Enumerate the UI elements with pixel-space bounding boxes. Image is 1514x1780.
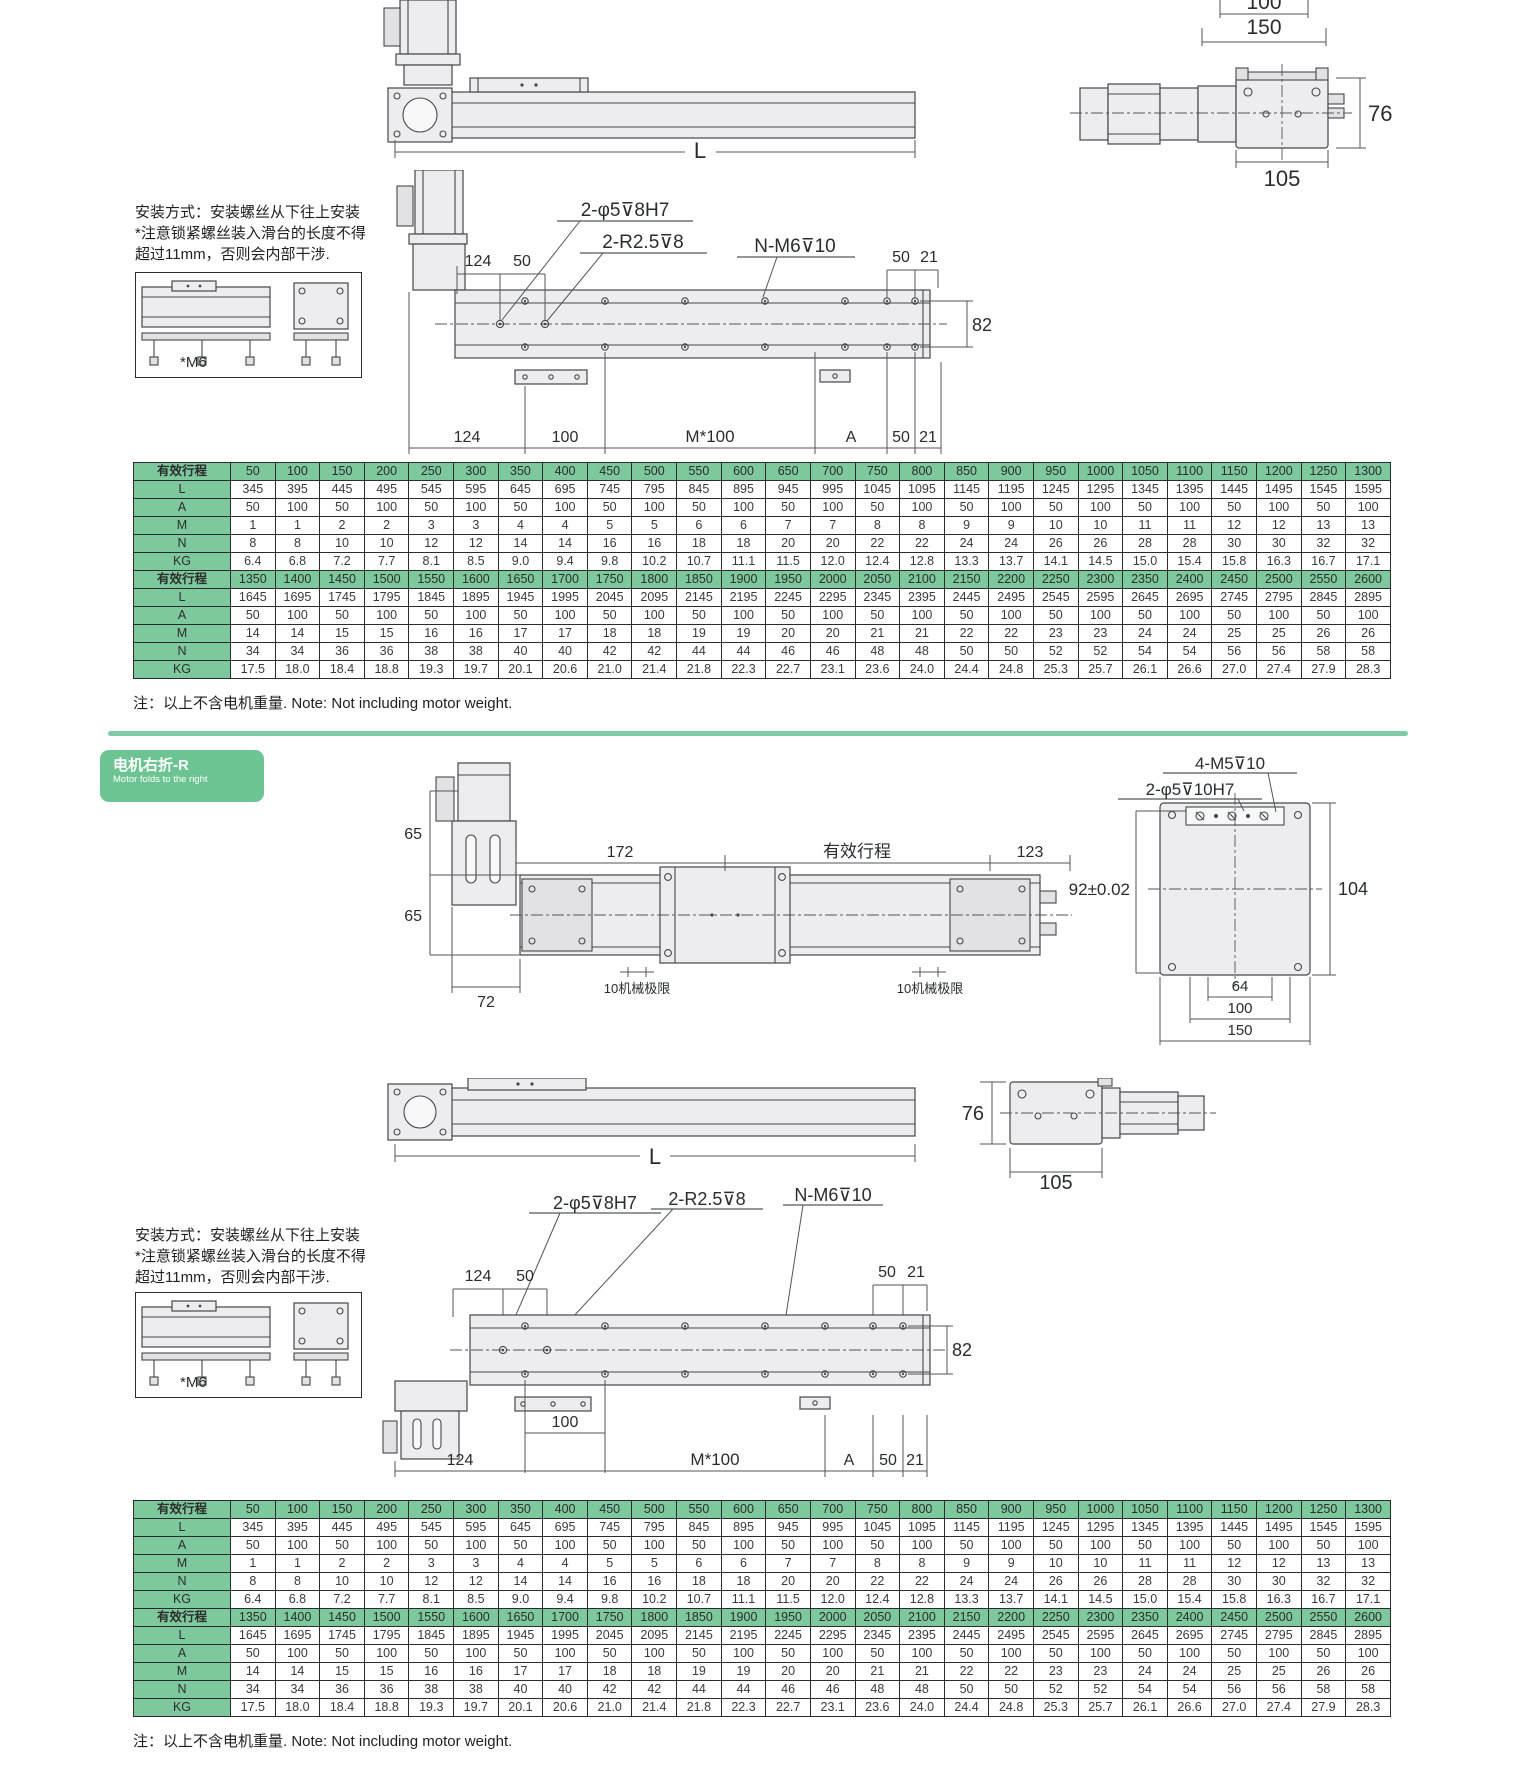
spec-cell: 13: [1346, 1555, 1391, 1573]
mech-limit-right: 10机械极限: [897, 981, 963, 996]
rail-body: [388, 88, 915, 142]
callout-radius: 2-R2.5⊽8: [602, 232, 684, 253]
stroke-header-label: 有效行程: [134, 1501, 231, 1519]
rail-bottom-face: [435, 290, 947, 358]
section-label: 电机右折-R Motor folds to the right: [100, 750, 264, 802]
spec-cell: 1445: [1212, 1519, 1257, 1537]
stroke-value: 2150: [944, 571, 989, 589]
spec-cell: 1245: [1033, 1519, 1078, 1537]
spec-cell: 745: [587, 1519, 632, 1537]
spec-cell: 46: [766, 1681, 811, 1699]
spec-cell: 7: [810, 517, 855, 535]
spec-cell: 32: [1301, 535, 1346, 553]
callout-thread: N-M6⊽10: [794, 1185, 871, 1205]
spec-cell: 13.7: [989, 1591, 1034, 1609]
stroke-value: 500: [632, 463, 677, 481]
mech-limit-left: 10机械极限: [604, 981, 670, 996]
spec-cell: 100: [632, 499, 677, 517]
spec-cell: 52: [1078, 1681, 1123, 1699]
dim-bA: A: [844, 1452, 855, 1469]
spec-cell: 2145: [677, 589, 722, 607]
spec-cell: 2745: [1212, 1627, 1257, 1645]
stroke-value: 800: [900, 463, 945, 481]
spec-cell: 10: [1033, 517, 1078, 535]
stroke-value: 1050: [1123, 1501, 1168, 1519]
spec-cell: 4: [498, 1555, 543, 1573]
spec-cell: 12: [1257, 1555, 1302, 1573]
vertical-motor: [384, 0, 460, 85]
spec-cell: 27.9: [1301, 661, 1346, 679]
section-divider: [108, 731, 1408, 736]
spec-row-N: N881010121214141616181820202222242426262…: [134, 1573, 1391, 1591]
install-instructions: 安装方式：安装螺丝从下往上安装 *注意锁紧螺丝装入滑台的长度不得 超过11mm，…: [135, 202, 395, 265]
dim-effective-stroke: 有效行程: [823, 842, 891, 861]
spec-cell: 48: [855, 1681, 900, 1699]
spec-cell: 945: [766, 481, 811, 499]
stroke-header-row: 有效行程135014001450150015501600165017001750…: [134, 1609, 1391, 1627]
spec-cell: 100: [1257, 499, 1302, 517]
spec-cell: 50: [1123, 1537, 1168, 1555]
spec-cell: 445: [320, 481, 365, 499]
spec-cell: 38: [409, 643, 454, 661]
drawing-top-side-view: L: [370, 0, 1030, 160]
spec-cell: 24.0: [900, 661, 945, 679]
spec-cell: 21: [900, 625, 945, 643]
spec-cell: 945: [766, 1519, 811, 1537]
stroke-value: 1400: [275, 1609, 320, 1627]
spec-cell: 2695: [1167, 589, 1212, 607]
stroke-header-label: 有效行程: [134, 571, 231, 589]
stroke-value: 200: [364, 1501, 409, 1519]
stroke-value: 1450: [320, 571, 365, 589]
spec-cell: 545: [409, 1519, 454, 1537]
spec-cell: 50: [944, 643, 989, 661]
stroke-value: 550: [677, 463, 722, 481]
spec-cell: 2395: [900, 589, 945, 607]
spec-cell: 11.5: [766, 553, 811, 571]
spec-cell: 100: [1078, 607, 1123, 625]
spec-cell: 100: [1346, 499, 1391, 517]
stroke-value: 100: [275, 463, 320, 481]
spec-cell: 100: [1078, 499, 1123, 517]
stroke-value: 2400: [1167, 1609, 1212, 1627]
spec-cell: 14: [231, 625, 276, 643]
dim-b50: 50: [879, 1452, 897, 1469]
stroke-value: 250: [409, 1501, 454, 1519]
spec-cell: 17: [543, 625, 588, 643]
spec-cell: 1945: [498, 1627, 543, 1645]
row-label: A: [134, 1645, 231, 1663]
dim-b50: 50: [892, 429, 910, 446]
spec-cell: 50: [409, 499, 454, 517]
spec-cell: 2095: [632, 1627, 677, 1645]
spec-cell: 100: [1257, 607, 1302, 625]
spec-cell: 24: [944, 1573, 989, 1591]
spec-cell: 1895: [454, 589, 499, 607]
spec-cell: 100: [721, 499, 766, 517]
spec-cell: 22.3: [721, 661, 766, 679]
spec-cell: 26: [1033, 1573, 1078, 1591]
spec-cell: 100: [1346, 1645, 1391, 1663]
stroke-value: 1250: [1301, 463, 1346, 481]
spec-row-M: M1122334455667788991010111112121313: [134, 1555, 1391, 1573]
spec-cell: 2795: [1257, 589, 1302, 607]
spec-cell: 18: [721, 535, 766, 553]
spec-table-2: 有效行程501001502002503003504004505005506006…: [133, 1500, 1391, 1717]
spec-cell: 27.4: [1257, 1699, 1302, 1717]
stroke-header-row: 有效行程135014001450150015501600165017001750…: [134, 571, 1391, 589]
spec-cell: 2545: [1033, 1627, 1078, 1645]
stroke-value: 2100: [900, 571, 945, 589]
spec-cell: 100: [364, 499, 409, 517]
install-diagram-box-2: *M6: [135, 1292, 362, 1398]
spec-cell: 1: [275, 517, 320, 535]
spec-cell: 10.2: [632, 553, 677, 571]
dim-flange-100: 100: [1227, 1000, 1252, 1017]
spec-cell: 1645: [231, 1627, 276, 1645]
spec-cell: 50: [1123, 607, 1168, 625]
stroke-value: 1250: [1301, 1501, 1346, 1519]
spec-cell: 2245: [766, 1627, 811, 1645]
spec-cell: 20.1: [498, 1699, 543, 1717]
dim-100: 100: [1246, 0, 1281, 14]
spec-cell: 21.8: [677, 1699, 722, 1717]
spec-table-2-wrap: 有效行程501001502002503003504004505005506006…: [133, 1500, 1391, 1717]
row-label: N: [134, 1681, 231, 1699]
spec-cell: 19: [677, 1663, 722, 1681]
dim-b21: 21: [919, 429, 937, 446]
spec-cell: 50: [320, 499, 365, 517]
spec-cell: 6: [677, 1555, 722, 1573]
spec-cell: 48: [855, 643, 900, 661]
spec-cell: 21: [900, 1663, 945, 1681]
spec-cell: 18: [587, 1663, 632, 1681]
spec-cell: 100: [989, 499, 1034, 517]
spec-cell: 32: [1346, 535, 1391, 553]
spec-cell: 50: [409, 1645, 454, 1663]
spec-cell: 12: [1257, 517, 1302, 535]
spec-cell: 21.4: [632, 661, 677, 679]
spec-cell: 5: [632, 517, 677, 535]
spec-cell: 20: [766, 1663, 811, 1681]
spec-cell: 1: [231, 1555, 276, 1573]
stroke-value: 1100: [1167, 463, 1212, 481]
spec-cell: 12: [1212, 1555, 1257, 1573]
spec-cell: 14: [275, 625, 320, 643]
stroke-value: 2150: [944, 1609, 989, 1627]
spec-cell: 50: [1301, 1645, 1346, 1663]
stroke-value: 450: [587, 463, 632, 481]
stroke-value: 1150: [1212, 463, 1257, 481]
spec-cell: 52: [1078, 643, 1123, 661]
footnote-1: 注：以上不含电机重量. Note: Not including motor we…: [133, 692, 512, 713]
spec-cell: 16: [587, 535, 632, 553]
spec-cell: 8.5: [454, 553, 499, 571]
spec-cell: 44: [721, 643, 766, 661]
spec-cell: 845: [677, 1519, 722, 1537]
spec-cell: 25.3: [1033, 1699, 1078, 1717]
rail-body: [388, 1078, 915, 1140]
stroke-value: 1350: [231, 1609, 276, 1627]
spec-cell: 2145: [677, 1627, 722, 1645]
install-diagram: *M6: [136, 273, 357, 373]
stroke-value: 500: [632, 1501, 677, 1519]
spec-cell: 50: [320, 1537, 365, 1555]
spec-cell: 1795: [364, 1627, 409, 1645]
spec-cell: 28: [1123, 1573, 1168, 1591]
folded-motor: [436, 763, 516, 905]
spec-cell: 24.0: [900, 1699, 945, 1717]
datasheet-page: L 100 150: [0, 0, 1514, 1780]
spec-cell: 21.8: [677, 661, 722, 679]
spec-cell: 50: [320, 1645, 365, 1663]
spec-cell: 7.2: [320, 553, 365, 571]
spec-row-KG: KG17.518.018.418.819.319.720.120.621.021…: [134, 661, 1391, 679]
dim-105-2: 105: [1039, 1172, 1072, 1190]
spec-cell: 12.4: [855, 553, 900, 571]
motor-side-profile: [1080, 84, 1236, 144]
spec-cell: 16: [409, 1663, 454, 1681]
spec-cell: 19: [721, 1663, 766, 1681]
stroke-value: 2050: [855, 571, 900, 589]
spec-cell: 22: [900, 1573, 945, 1591]
dim-76: 76: [1368, 101, 1392, 126]
row-label: A: [134, 607, 231, 625]
spec-cell: 595: [454, 1519, 499, 1537]
spec-cell: 50: [855, 1537, 900, 1555]
spec-cell: 8: [231, 535, 276, 553]
spec-cell: 100: [900, 1645, 945, 1663]
spec-row-KG: KG6.46.87.27.78.18.59.09.49.810.210.711.…: [134, 1591, 1391, 1609]
spec-cell: 10.2: [632, 1591, 677, 1609]
row-label: M: [134, 1555, 231, 1573]
spec-cell: 26: [1346, 625, 1391, 643]
spec-cell: 100: [454, 1645, 499, 1663]
spec-cell: 50: [587, 499, 632, 517]
row-label: KG: [134, 1699, 231, 1717]
stroke-value: 100: [275, 1501, 320, 1519]
spec-cell: 2395: [900, 1627, 945, 1645]
spec-cell: 4: [543, 517, 588, 535]
spec-cell: 14.5: [1078, 553, 1123, 571]
spec-cell: 2645: [1123, 589, 1168, 607]
spec-cell: 1095: [900, 1519, 945, 1537]
slider-plate: [470, 78, 588, 92]
spec-cell: 13: [1301, 1555, 1346, 1573]
spec-cell: 17.1: [1346, 553, 1391, 571]
spec-row-L: L345395445495545595645695745795845895945…: [134, 1519, 1391, 1537]
stroke-value: 1650: [498, 1609, 543, 1627]
spec-cell: 1545: [1301, 1519, 1346, 1537]
spec-cell: 27.9: [1301, 1699, 1346, 1717]
spec-cell: 100: [275, 607, 320, 625]
install-line-1: 安装方式：安装螺丝从下往上安装: [135, 202, 395, 223]
spec-cell: 4: [498, 517, 543, 535]
spec-cell: 15.4: [1167, 1591, 1212, 1609]
spec-cell: 100: [454, 607, 499, 625]
spec-cell: 34: [275, 643, 320, 661]
spec-cell: 11: [1123, 1555, 1168, 1573]
stroke-value: 250: [409, 463, 454, 481]
stroke-value: 1550: [409, 1609, 454, 1627]
spec-cell: 2045: [587, 1627, 632, 1645]
spec-cell: 50: [944, 1645, 989, 1663]
spec-cell: 50: [587, 1645, 632, 1663]
spec-row-N: N881010121214141616181820202222242426262…: [134, 535, 1391, 553]
spec-cell: 15.0: [1123, 1591, 1168, 1609]
stroke-value: 1350: [231, 571, 276, 589]
spec-cell: 20: [810, 1663, 855, 1681]
spec-cell: 26: [1033, 535, 1078, 553]
spec-cell: 1: [231, 517, 276, 535]
row-label: L: [134, 481, 231, 499]
spec-cell: 395: [275, 1519, 320, 1537]
dim-105: 105: [1264, 166, 1301, 191]
drawing-right-fold-top-view: 172 有效行程 123 65 65 72 10机械极限 10机械极限: [330, 755, 1420, 1075]
stroke-value: 2500: [1257, 1609, 1302, 1627]
row-label: L: [134, 589, 231, 607]
spec-cell: 38: [409, 1681, 454, 1699]
spec-cell: 2795: [1257, 1627, 1302, 1645]
stroke-value: 2100: [900, 1609, 945, 1627]
spec-cell: 20: [810, 535, 855, 553]
row-label: M: [134, 1663, 231, 1681]
dim-length-L: L: [694, 138, 706, 160]
spec-cell: 16: [409, 625, 454, 643]
spec-cell: 2545: [1033, 589, 1078, 607]
spec-cell: 50: [1212, 1645, 1257, 1663]
dim-21-right: 21: [907, 1264, 925, 1281]
dim-124: 124: [465, 1268, 492, 1285]
spec-cell: 100: [1167, 1537, 1212, 1555]
spec-cell: 1595: [1346, 1519, 1391, 1537]
spec-cell: 1345: [1123, 481, 1168, 499]
spec-cell: 100: [1078, 1645, 1123, 1663]
spec-cell: 24: [989, 1573, 1034, 1591]
spec-cell: 20: [766, 1573, 811, 1591]
spec-cell: 7.7: [364, 553, 409, 571]
spec-cell: 18.0: [275, 661, 320, 679]
spec-cell: 21: [855, 625, 900, 643]
spec-cell: 8: [900, 1555, 945, 1573]
spec-cell: 19.3: [409, 1699, 454, 1717]
stroke-value: 2350: [1123, 571, 1168, 589]
stroke-value: 2600: [1346, 571, 1391, 589]
spec-cell: 22: [989, 1663, 1034, 1681]
spec-cell: 18: [587, 625, 632, 643]
dim-50: 50: [516, 1268, 534, 1285]
dim-65b: 65: [404, 908, 422, 925]
spec-cell: 42: [587, 1681, 632, 1699]
stroke-value: 1550: [409, 571, 454, 589]
spec-cell: 1695: [275, 589, 320, 607]
spec-cell: 1845: [409, 1627, 454, 1645]
dim-flange-150: 150: [1227, 1022, 1252, 1039]
spec-cell: 12: [1212, 517, 1257, 535]
spec-cell: 1545: [1301, 481, 1346, 499]
spec-cell: 50: [498, 1645, 543, 1663]
spec-row-KG: KG17.518.018.418.819.319.720.120.621.021…: [134, 1699, 1391, 1717]
spec-cell: 100: [1257, 1537, 1302, 1555]
stroke-value: 2350: [1123, 1609, 1168, 1627]
spec-cell: 20.1: [498, 661, 543, 679]
spec-cell: 1345: [1123, 1519, 1168, 1537]
row-label: KG: [134, 553, 231, 571]
spec-cell: 9: [989, 1555, 1034, 1573]
spec-cell: 17: [498, 625, 543, 643]
spec-cell: 17.5: [231, 1699, 276, 1717]
stroke-value: 2250: [1033, 1609, 1078, 1627]
stroke-value: 1800: [632, 571, 677, 589]
spec-cell: 17: [498, 1663, 543, 1681]
spec-cell: 38: [454, 1681, 499, 1699]
spec-cell: 1995: [543, 589, 588, 607]
spec-cell: 2645: [1123, 1627, 1168, 1645]
spec-cell: 2345: [855, 1627, 900, 1645]
spec-cell: 24.8: [989, 661, 1034, 679]
stroke-value: 350: [498, 1501, 543, 1519]
spec-cell: 100: [543, 1537, 588, 1555]
stroke-value: 1850: [677, 571, 722, 589]
dim-50-right: 50: [892, 249, 910, 266]
spec-cell: 54: [1123, 1681, 1168, 1699]
spec-cell: 1495: [1257, 481, 1302, 499]
spec-cell: 25: [1257, 1663, 1302, 1681]
spec-cell: 10: [1078, 517, 1123, 535]
spec-cell: 5: [632, 1555, 677, 1573]
spec-cell: 13.3: [944, 1591, 989, 1609]
spec-cell: 18: [632, 625, 677, 643]
spec-cell: 1895: [454, 1627, 499, 1645]
spec-cell: 8.1: [409, 1591, 454, 1609]
dim-50: 50: [513, 253, 531, 270]
spec-cell: 24.4: [944, 1699, 989, 1717]
row-label: L: [134, 1627, 231, 1645]
spec-cell: 6: [677, 517, 722, 535]
spec-cell: 15: [364, 625, 409, 643]
spec-cell: 16.7: [1301, 553, 1346, 571]
spec-cell: 13.3: [944, 553, 989, 571]
spec-cell: 32: [1346, 1573, 1391, 1591]
spec-cell: 19.7: [454, 661, 499, 679]
spec-cell: 50: [1123, 499, 1168, 517]
spec-cell: 20.6: [543, 1699, 588, 1717]
spec-cell: 1395: [1167, 1519, 1212, 1537]
dim-length-L2: L: [649, 1144, 661, 1169]
spec-cell: 11: [1167, 1555, 1212, 1573]
rail-bottom-face: [450, 1315, 945, 1385]
stroke-value: 850: [944, 463, 989, 481]
spec-cell: 14.1: [1033, 553, 1078, 571]
spec-cell: 36: [364, 643, 409, 661]
spec-cell: 7: [766, 1555, 811, 1573]
spec-cell: 50: [498, 607, 543, 625]
spec-cell: 11: [1167, 517, 1212, 535]
stroke-value: 1450: [320, 1609, 365, 1627]
spec-cell: 645: [498, 1519, 543, 1537]
stroke-value: 950: [1033, 463, 1078, 481]
end-view-right-fold: [1000, 1078, 1216, 1144]
spec-row-M: M1122334455667788991010111112121313: [134, 517, 1391, 535]
spec-cell: 100: [543, 1645, 588, 1663]
stroke-value: 700: [810, 1501, 855, 1519]
spec-cell: 1745: [320, 589, 365, 607]
spec-cell: 16.3: [1257, 1591, 1302, 1609]
spec-cell: 50: [677, 1645, 722, 1663]
spec-cell: 22: [944, 625, 989, 643]
spec-cell: 15.0: [1123, 553, 1168, 571]
stroke-value: 1300: [1346, 463, 1391, 481]
